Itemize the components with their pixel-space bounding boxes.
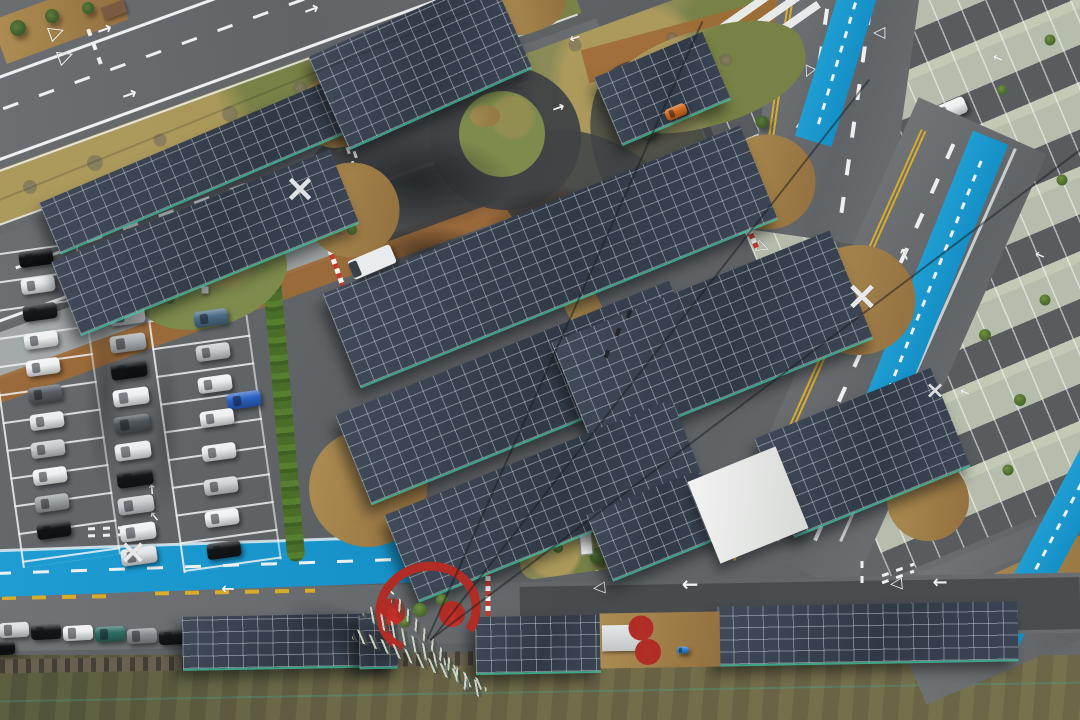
clutter-dot — [635, 639, 661, 665]
light-pole-cross: × — [922, 377, 948, 403]
solar-strip — [718, 601, 1019, 664]
parked-car — [63, 625, 94, 642]
parked-car — [0, 640, 15, 655]
light-pole-cross: × — [115, 534, 151, 570]
tree — [10, 20, 26, 36]
aerial-photo: ▽▽↑↑↑↑←←←←▽▽▽▽↑↑↑↑↑←←←↑▽▽▽▽←↑↑×××× — [0, 0, 1080, 720]
parked-car — [31, 624, 62, 641]
left-arrow-marking: ← — [929, 572, 951, 594]
yield-triangle-marking: ▽ — [870, 23, 890, 43]
tree-bare — [720, 54, 733, 67]
bush — [979, 329, 991, 341]
stop-bar-dashes — [861, 561, 864, 587]
bush — [1045, 35, 1056, 46]
parked-car — [0, 622, 29, 639]
tree — [756, 116, 769, 129]
tree — [82, 2, 94, 14]
parked-car — [127, 628, 158, 645]
bush — [1040, 295, 1051, 306]
parked-car — [95, 626, 126, 643]
bush — [1014, 394, 1026, 406]
solar-strip — [475, 615, 601, 673]
bush — [1057, 175, 1068, 186]
clutter-dot — [202, 287, 209, 294]
clutter-dot — [629, 616, 654, 641]
left-arrow-marking: ← — [218, 579, 238, 599]
bush — [997, 85, 1007, 95]
clutter-dot — [677, 647, 689, 654]
yield-triangle-marking: ▽ — [589, 577, 611, 599]
circle-island-dirt-patch — [470, 105, 500, 127]
light-pole-cross: × — [280, 168, 320, 208]
left-arrow-marking: ← — [678, 572, 702, 596]
light-pole-cross: × — [841, 275, 883, 317]
bush — [1003, 465, 1014, 476]
tower-shrub — [413, 603, 427, 617]
